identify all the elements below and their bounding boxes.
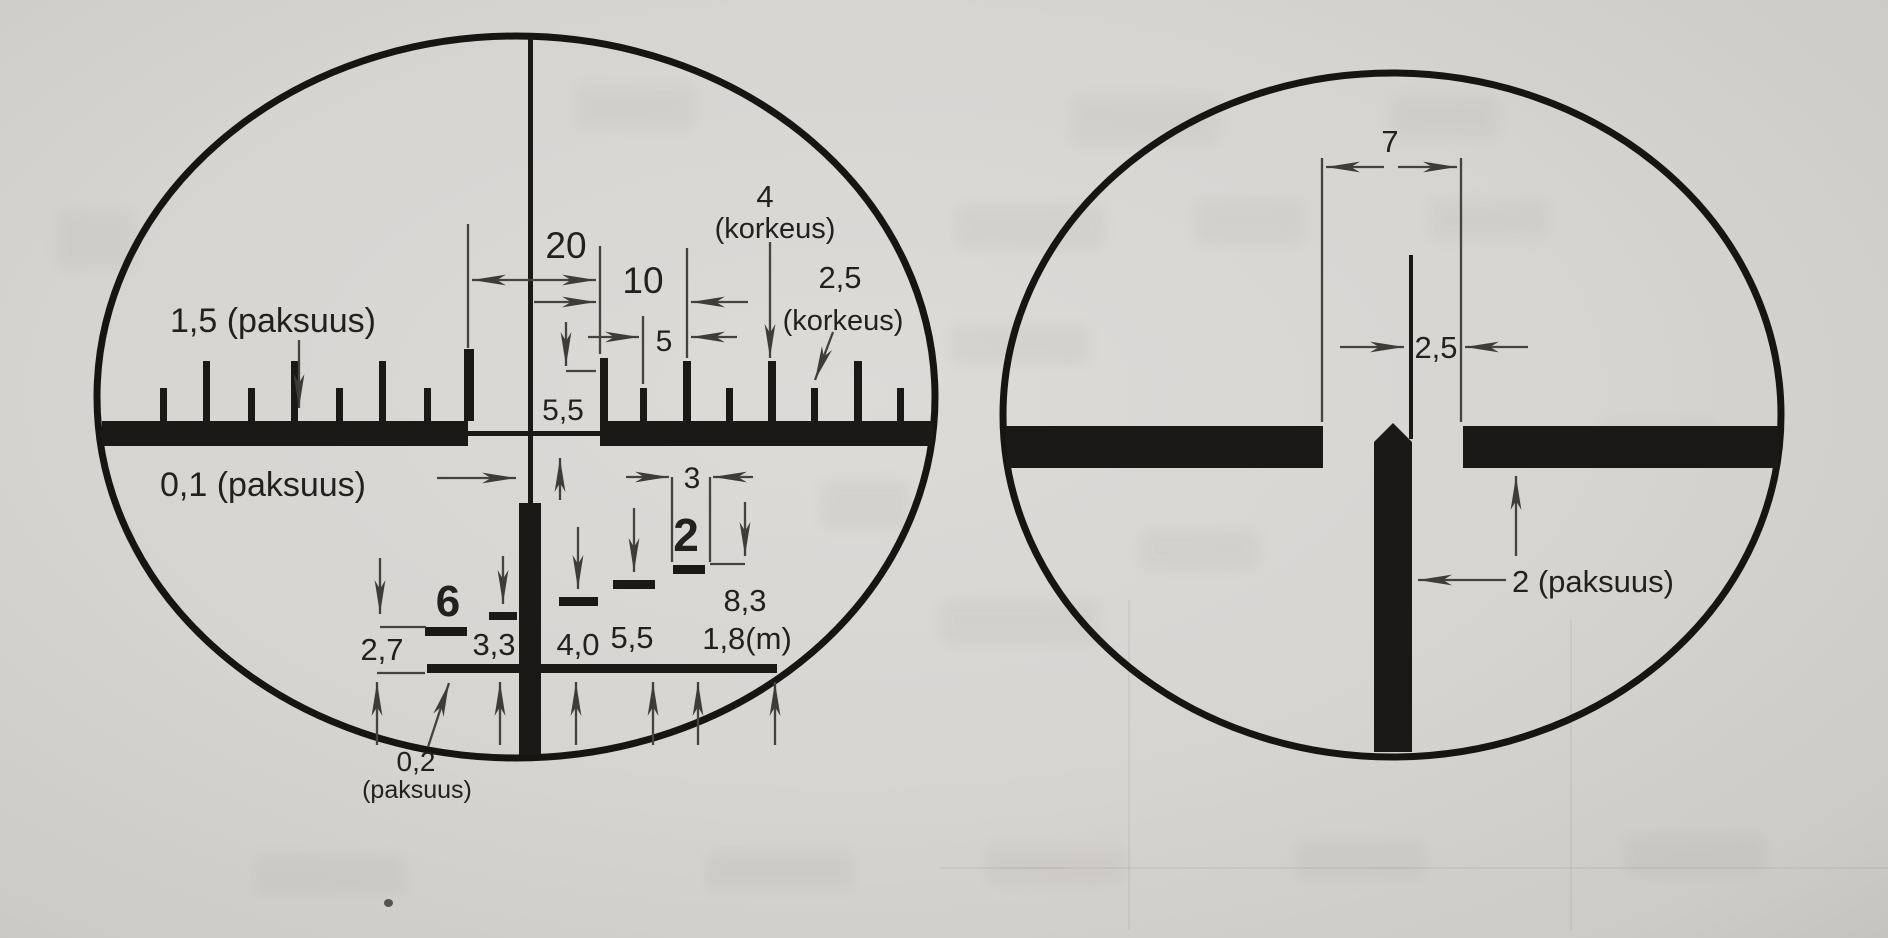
post-tip [1374,423,1412,449]
left-reticle-circle [97,36,935,758]
label-stadia-2: 2 [673,509,699,561]
label-thickness-0-2-unit: (paksuus) [362,776,472,804]
label-height-2-5-unit: (korkeus) [783,305,904,337]
label-thickness-2: 2 (paksuus) [1512,564,1674,599]
tick [336,388,343,421]
tick [248,388,255,421]
label-thickness-0-2: 0,2 [397,746,436,777]
label-height-4: 4 [756,179,773,214]
right-bar [1463,426,1779,468]
left-bar [102,421,468,446]
label-target-height-1-8: 1,8(m) [702,621,792,656]
label-thickness-0-1: 0,1 (paksuus) [160,466,366,504]
reticle-diagram: 1,5 (paksuus) 20 10 5 5,5 4 (korkeus) 2,… [0,0,1888,938]
tick [811,388,818,421]
bar-start-tick [600,358,608,421]
center-post [1374,444,1412,752]
bar-end-tick [464,349,474,421]
left-bar [1006,426,1323,468]
label-dim-5-5: 5,5 [610,620,653,655]
leader-2-5 [815,332,833,380]
label-dim-3-3: 3,3 [472,627,515,662]
tick [897,388,904,421]
tick [160,388,167,421]
label-dim-5: 5 [656,325,673,358]
label-range-8-3: 8,3 [723,583,766,618]
tick [379,361,386,421]
label-dim-20: 20 [545,225,586,266]
tick [640,388,647,421]
label-tip-width-2-5: 2,5 [1414,330,1457,365]
stadia-bar-5-5 [613,580,655,589]
leader-0-2 [428,683,449,747]
label-thickness-1-5: 1,5 (paksuus) [170,302,376,340]
tick [854,361,862,421]
left-bar-ticks [160,349,474,421]
thin-center-line [1409,255,1413,439]
label-dim-3: 3 [684,462,701,495]
label-stadia-6: 6 [436,577,460,626]
left-lower-post [519,503,541,755]
label-gap-7: 7 [1381,124,1398,159]
stadia-bar-2 [673,565,705,574]
label-dim-4-0: 4,0 [556,627,599,662]
tick [726,388,733,421]
stadia-long-bar [427,664,777,673]
right-reticle: 7 2,5 2 (paksuus) [1003,73,1781,757]
label-tick-height-5-5: 5,5 [542,394,584,427]
stadia-bar-small [489,612,517,620]
tick [683,361,691,421]
label-dim-10: 10 [622,260,663,301]
left-reticle: 1,5 (paksuus) 20 10 5 5,5 4 (korkeus) 2,… [97,36,935,804]
right-bar [600,421,933,446]
stadia-bar-6 [425,627,467,636]
label-height-2-5: 2,5 [818,260,861,295]
label-height-4-unit: (korkeus) [715,213,836,245]
tick [291,361,298,421]
tick [424,388,431,421]
label-dim-2-7: 2,7 [360,632,403,667]
right-bar-ticks [600,358,904,421]
tick [768,361,776,421]
scanned-page: 1,5 (paksuus) 20 10 5 5,5 4 (korkeus) 2,… [0,0,1888,938]
stadia-bar-4-0 [559,597,598,606]
tick [203,361,210,421]
